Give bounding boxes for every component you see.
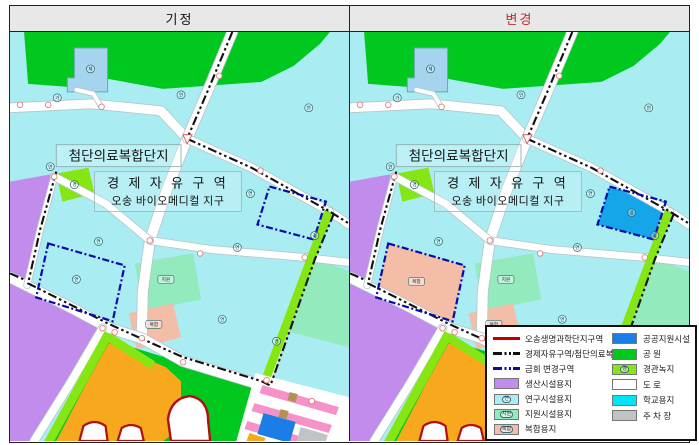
legend-swatch: 경 [611,364,638,375]
parcel-label-char: 경 [653,232,657,238]
junction-node [357,102,363,108]
legend-line-symbol [493,367,520,370]
legend-item: 금회 변경구역 [493,361,611,376]
legend-item: 학교용지 [611,393,693,408]
parcel-label-char: 연 [235,244,239,250]
legend-item: 경경관녹지 [611,362,693,377]
legend-item: 주 차 장 [611,408,693,423]
legend-item-label: 생산시설용지 [525,378,572,390]
parcel-label-char: 연 [307,104,311,110]
swatch-mark: 복합 [500,426,513,433]
color-swatch-public [612,333,637,344]
legend-item-label: 복합용지 [525,423,556,435]
parcel-label-char: 연 [647,104,651,110]
parcel-label-char: 연 [388,163,392,169]
parcel-label-text: 복합 [150,321,159,328]
boundary-line-sample [493,352,520,355]
parcel-label-char: 가 [55,94,59,101]
comparison-frame: 기정 변경 연연연연연연연경경경체가연지원복합첨단의료복합단지경 제 자 유 구… [9,5,690,443]
legend-item: 경제자유구역/첨단의료복합단지 [493,346,611,361]
junction-node [216,73,222,79]
parcel-label-text: 지원 [502,276,510,283]
legend-line-symbol [493,352,520,355]
legend-swatch [493,378,520,389]
color-swatch-support: 지원 [494,409,519,420]
legend-item-label: 주 차 장 [643,410,671,422]
right-title-text: 변경 [506,9,534,28]
parcel-label-char: 연 [220,316,224,322]
legend: 오송생명과학단지구역경제자유구역/첨단의료복합단지금회 변경구역생산시설용지연연… [485,325,697,441]
legend-item: 연연구시설용지 [493,392,611,407]
legend-item-label: 공 원 [643,348,661,360]
junction-node [537,251,543,257]
legend-item-label: 연구시설용지 [525,393,572,405]
parcel-label-char: 연 [519,91,523,97]
legend-line-symbol [493,337,520,340]
swatch-mark: 경 [620,366,629,373]
legend-item-label: 도 로 [643,379,661,391]
junction-node [452,329,458,335]
parcel-label-char: 연 [48,163,52,169]
legend-item: 지원지원시설용지 [493,407,611,422]
junction-node [139,335,145,341]
junction-node [440,325,446,331]
legend-item: 공공지원시설 [611,331,693,346]
parcel-label-text: 지원 [162,276,170,283]
legend-swatch [611,333,638,344]
legend-item-label: 금회 변경구역 [525,363,574,375]
parcel-label-char: 공 [630,210,634,215]
legend-swatch: 복합 [493,424,520,435]
legend-item-label: 지원시설용지 [525,408,572,420]
junction-node [439,104,445,110]
color-swatch-parking [612,410,637,421]
junction-node [642,255,648,261]
legend-swatch [611,379,638,390]
swatch-mark: 연 [502,396,511,403]
junction-node [556,73,562,79]
economic-zone-label: 경 제 자 유 구 역 [447,176,569,191]
parcel-label-char: 연 [74,276,78,282]
parcel-label-char: 경 [72,181,76,187]
junction-node [302,255,308,261]
economic-zone-label: 경 제 자 유 구 역 [107,176,229,191]
parcel-label-char: 경 [412,181,416,187]
parcel-label-char: 연 [96,238,100,244]
existing-zoning-map: 연연연연연연연경경경체가연지원복합첨단의료복합단지경 제 자 유 구 역오송 바… [10,32,349,441]
parcel-label-char: 연 [560,316,564,322]
right-panel-title: 변경 [350,6,689,31]
biomedical-district-label: 오송 바이오메디컬 지구 [451,195,564,208]
parcel-label-char: 연 [575,244,579,250]
junction-node [258,168,264,174]
parcel-label-text: 복합 [412,278,421,285]
junction-node [487,238,493,244]
legend-item-label: 오송생명과학단지구역 [525,333,603,345]
legend-swatch [611,349,638,360]
legend-item-label: 공공지원시설 [643,333,690,345]
science-complex-boundary [79,422,107,441]
boundary-line-sample [493,367,520,370]
parcel-label-char: 체 [428,66,432,73]
junction-node [309,398,315,404]
junction-node [197,251,203,257]
junction-node [112,329,118,335]
color-swatch-landscape: 경 [612,364,637,375]
junction-node [99,104,105,110]
legend-item: 공 원 [611,346,693,361]
junction-node [391,174,397,180]
junction-node [17,102,23,108]
legend-swatch: 연 [493,394,520,405]
legend-swatch [611,410,638,421]
junction-node [479,335,485,341]
junction-node [264,377,270,383]
color-swatch-road [612,379,637,390]
junction-node [51,174,57,180]
parcel-label-char: 경 [275,338,279,344]
legend-item: 생산시설용지 [493,376,611,391]
title-bar: 기정 변경 [10,6,689,32]
legend-item-label: 경관녹지 [643,363,674,375]
left-panel-title: 기정 [10,6,350,31]
complex-label: 첨단의료복합단지 [69,149,169,164]
legend-col-left: 오송생명과학단지구역경제자유구역/첨단의료복합단지금회 변경구역생산시설용지연연… [493,331,611,437]
science-complex-boundary [168,396,210,441]
parcel-label-char: 가 [395,94,399,101]
science-complex-boundary [419,422,447,441]
junction-node [385,102,391,108]
legend-col-right: 공공지원시설공 원경경관녹지도 로학교용지주 차 장 [611,331,693,437]
parcel-label-char: 연 [436,238,440,244]
legend-item: 도 로 [611,377,693,392]
color-swatch-production [494,378,519,389]
legend-swatch: 지원 [493,409,520,420]
science-complex-boundary [458,425,484,441]
junction-node [180,359,186,365]
color-swatch-research: 연 [494,394,519,405]
color-swatch-park [612,349,637,360]
complex-label: 첨단의료복합단지 [409,149,509,164]
parcel-label-char: 연 [588,190,592,196]
legend-item: 오송생명과학단지구역 [493,331,611,346]
legend-item: 복합복합용지 [493,422,611,437]
parcel-label-char: 경 [313,232,317,238]
parcel-label-char: 연 [248,190,252,196]
legend-item-label: 학교용지 [643,394,674,406]
left-title-text: 기정 [166,9,194,28]
map-existing: 연연연연연연연경경경체가연지원복합첨단의료복합단지경 제 자 유 구 역오송 바… [10,32,350,441]
parcel-label-char: 체 [88,66,92,73]
color-swatch-mixed: 복합 [494,424,519,435]
boundary-line-sample [493,337,520,340]
junction-node [100,325,106,331]
junction-node [147,238,153,244]
junction-node [598,168,604,174]
biomedical-district-label: 오송 바이오메디컬 지구 [111,195,224,208]
legend-swatch [611,395,638,406]
parcel-label-char: 연 [179,91,183,97]
color-swatch-school [612,395,637,406]
swatch-mark: 지원 [500,411,513,418]
science-complex-boundary [118,425,144,441]
junction-node [45,102,51,108]
